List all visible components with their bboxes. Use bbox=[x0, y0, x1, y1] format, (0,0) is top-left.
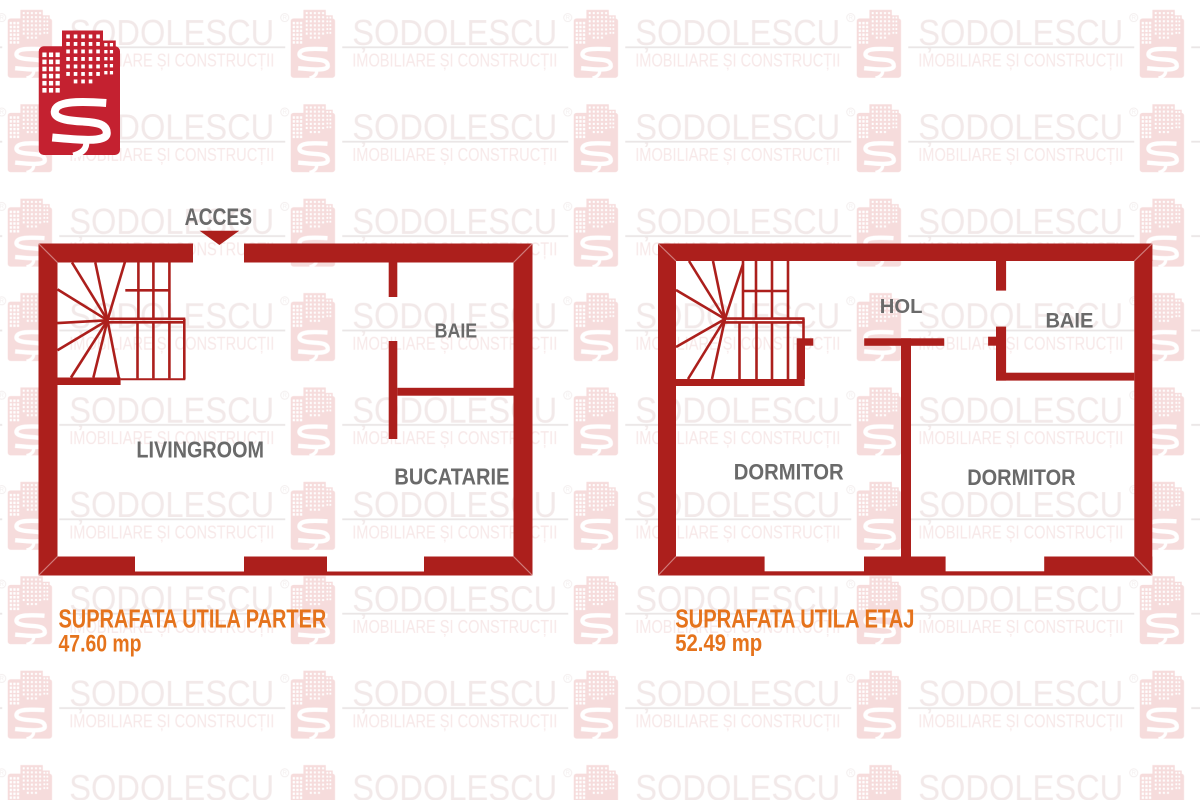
svg-text:DORMITOR: DORMITOR bbox=[967, 465, 1075, 490]
svg-text:ACCES: ACCES bbox=[185, 204, 253, 231]
svg-text:BUCATARIE: BUCATARIE bbox=[394, 463, 509, 489]
svg-text:BAIE: BAIE bbox=[1045, 309, 1093, 333]
svg-text:52.49 mp: 52.49 mp bbox=[675, 630, 762, 657]
svg-text:47.60 mp: 47.60 mp bbox=[59, 631, 142, 658]
svg-text:DORMITOR: DORMITOR bbox=[734, 459, 844, 484]
svg-text:LIVINGROOM: LIVINGROOM bbox=[136, 437, 264, 463]
svg-text:SUPRAFATA UTILA PARTER: SUPRAFATA UTILA PARTER bbox=[59, 604, 327, 634]
svg-text:HOL: HOL bbox=[880, 296, 923, 318]
svg-text:BAIE: BAIE bbox=[435, 320, 478, 343]
svg-text:SUPRAFATA UTILA ETAJ: SUPRAFATA UTILA ETAJ bbox=[675, 604, 914, 634]
